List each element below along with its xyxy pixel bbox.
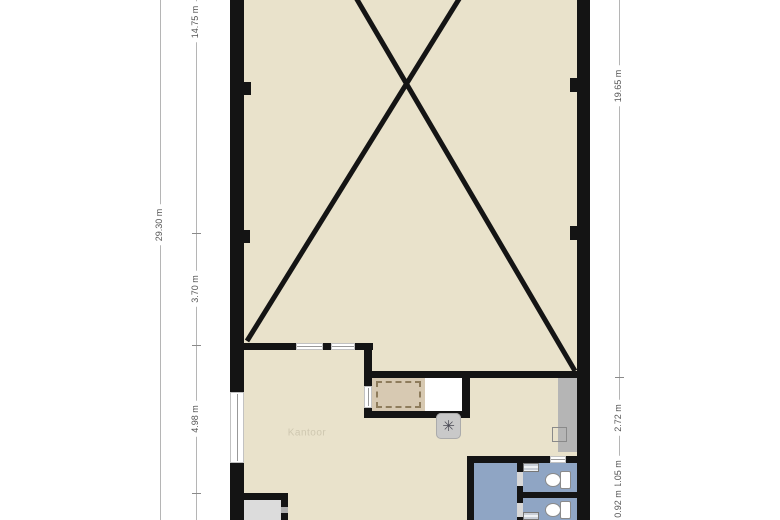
counter-sink-outline (552, 427, 567, 442)
wall-pilaster (570, 226, 577, 240)
ventilation-glyph: ✳ (442, 417, 455, 435)
exterior-wall-left-upper (230, 0, 244, 392)
closet-dashed-outline (376, 381, 421, 408)
stair-closet (372, 378, 425, 411)
washbasin (523, 463, 539, 472)
ventilation-unit-icon: ✳ (436, 413, 461, 439)
staircase (425, 378, 462, 411)
window-left (230, 392, 244, 463)
dimension-tick (192, 345, 201, 346)
exterior-wall-right (577, 0, 590, 520)
toilet-bowl (545, 503, 561, 517)
wall-pilaster (570, 78, 577, 92)
stair-right-wall (462, 378, 470, 411)
wall-pilaster (244, 230, 250, 243)
interior-window-1 (296, 343, 323, 350)
washbasin (523, 512, 539, 520)
exterior-wall-left-lower (230, 463, 244, 520)
interior-window-2 (331, 343, 355, 350)
dimension-label: 3.70 m (190, 271, 202, 307)
toilet-tank (560, 501, 571, 519)
dimension-line-left-inner (196, 0, 197, 520)
dimension-tick (192, 233, 201, 234)
dimension-label: 0.92 m (613, 486, 625, 520)
stair-top-wall (372, 371, 578, 378)
wall-pilaster (244, 82, 251, 95)
dimension-tick (615, 377, 624, 378)
grayroom-floor (244, 500, 281, 520)
dimension-tick (192, 493, 201, 494)
toilet-bowl (545, 473, 561, 487)
dimension-line-left-outer (160, 0, 161, 520)
dimension-label: 14.75 m (190, 2, 202, 43)
dimension-label: 2.72 m (613, 400, 625, 436)
floorplan-canvas: ✳ Kantoor 29.30 m 14.75 m 3.70 m 4.98 m … (0, 0, 780, 520)
wetroom-left (474, 463, 517, 520)
wetroom-left-wall (467, 456, 474, 520)
plan-linework (0, 0, 780, 520)
cross-diagonal-line (247, 0, 575, 371)
wetroom-door-opening (550, 456, 566, 463)
dimension-label: 29.30 m (154, 205, 166, 246)
grayroom-door-mark (281, 507, 288, 513)
toilet-tank (560, 471, 571, 489)
dimension-label: 4.98 m (190, 401, 202, 437)
room-label-office: Kantoor (288, 428, 327, 439)
stair-closet-door-opening (364, 386, 372, 408)
dimension-label: 19.65 m (613, 66, 625, 107)
